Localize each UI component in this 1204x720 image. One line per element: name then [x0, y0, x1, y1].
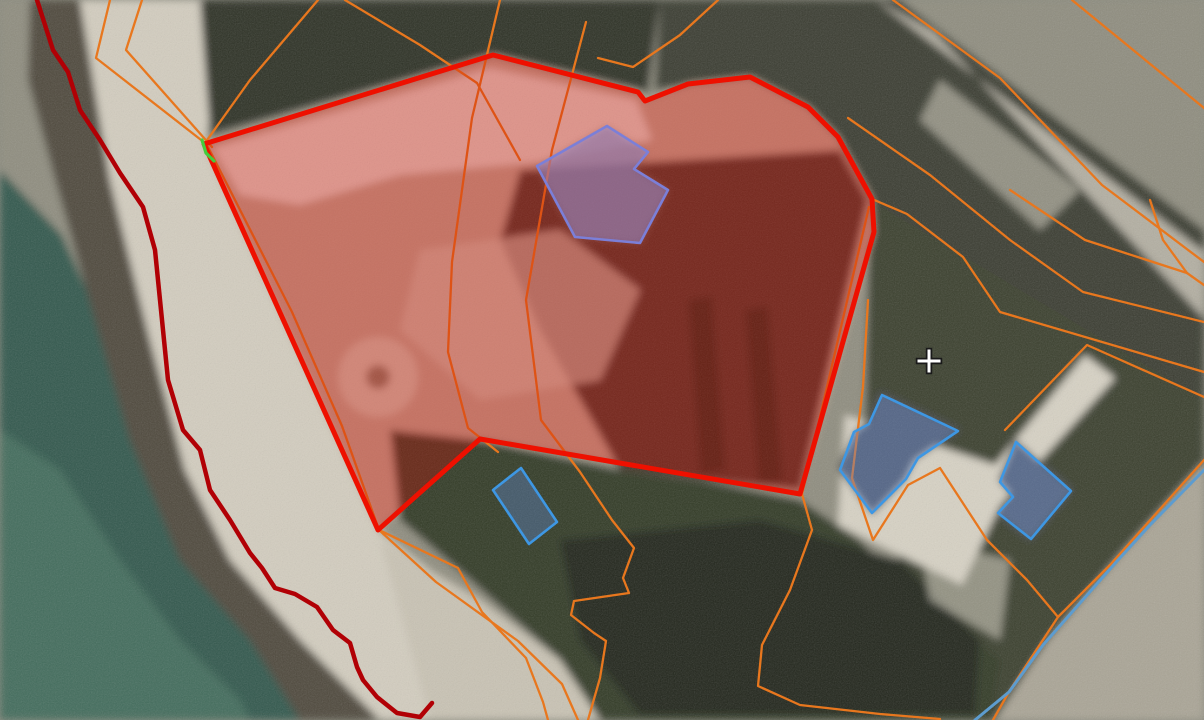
map-canvas[interactable] [0, 0, 1204, 720]
map-viewport [0, 0, 1204, 720]
